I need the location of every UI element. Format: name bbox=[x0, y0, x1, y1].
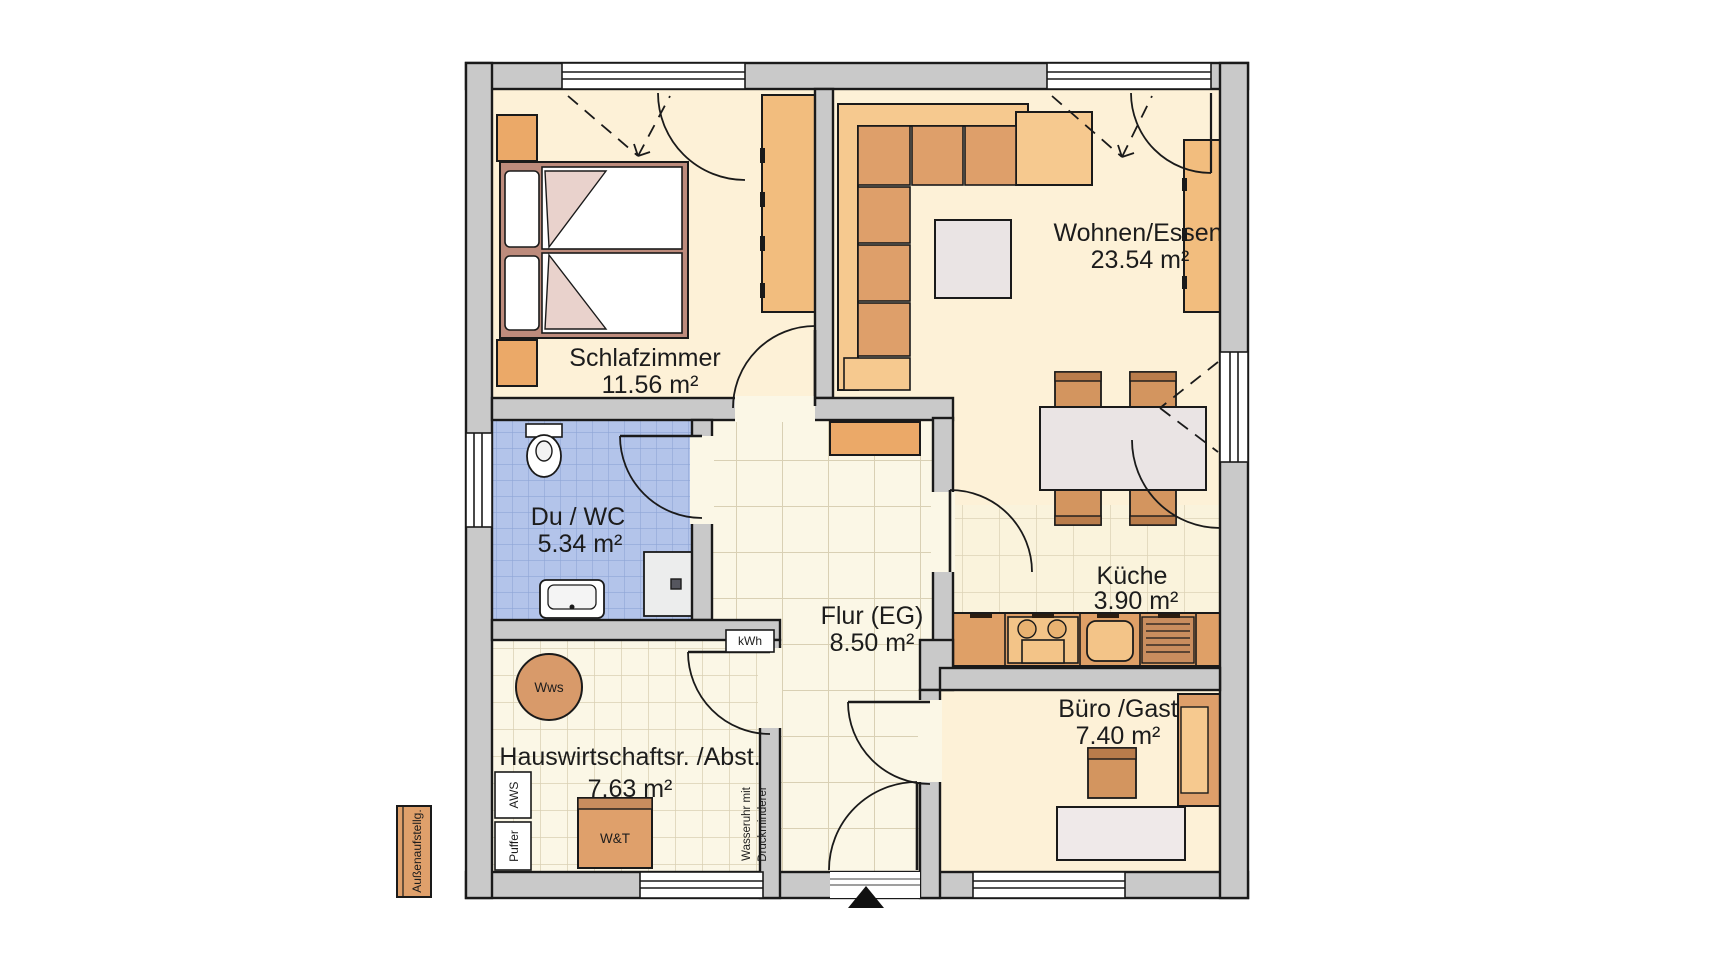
pillow bbox=[505, 256, 539, 330]
window-bedroom-top bbox=[562, 63, 745, 89]
label-buero-area: 7.40 m² bbox=[1076, 722, 1161, 750]
desk bbox=[1057, 807, 1185, 860]
label-schlafzimmer-name: Schlafzimmer bbox=[569, 344, 720, 372]
label-wasseruhr-1: Wasseruhr mit bbox=[741, 786, 753, 860]
wall-bedroom-bottom bbox=[492, 398, 953, 420]
label-kwh: kWh bbox=[738, 634, 762, 648]
entrance-opening bbox=[830, 872, 920, 898]
label-wohnen-name: Wohnen/Essen bbox=[1053, 219, 1222, 247]
label-schlafzimmer-area: 11.56 m² bbox=[602, 371, 699, 399]
label-hwr-area: 7.63 m² bbox=[588, 775, 673, 803]
label-buero-name: Büro /Gast bbox=[1058, 695, 1178, 723]
floor-plan-page: Schlafzimmer 11.56 m² Wohnen/Essen 23.54… bbox=[0, 0, 1720, 968]
label-kueche-name: Küche bbox=[1097, 562, 1168, 590]
window-hwr-bottom bbox=[640, 872, 763, 898]
label-wasseruhr-2: Druckminderer bbox=[757, 786, 769, 862]
nightstand bbox=[497, 115, 537, 161]
wall-bedroom-living bbox=[815, 89, 833, 398]
wall-right bbox=[1220, 63, 1248, 898]
shower-drain bbox=[671, 579, 681, 589]
hall-sideboard bbox=[830, 422, 920, 455]
label-wws: Wws bbox=[534, 680, 563, 695]
window-left bbox=[466, 433, 492, 527]
label-flur-name: Flur (EG) bbox=[821, 602, 924, 630]
oven bbox=[1022, 640, 1064, 663]
dining-table bbox=[1040, 407, 1206, 490]
label-flur-area: 8.50 m² bbox=[830, 629, 915, 657]
pillow bbox=[505, 171, 539, 247]
drainer bbox=[1142, 617, 1194, 663]
coffee-table bbox=[935, 220, 1011, 298]
label-duwc-area: 5.34 m² bbox=[538, 530, 623, 558]
label-aws: AWS bbox=[507, 782, 521, 809]
window-terrace-door-top bbox=[1047, 63, 1211, 89]
wardrobe bbox=[762, 95, 816, 312]
label-duwc-name: Du / WC bbox=[531, 503, 625, 531]
nightstand bbox=[497, 340, 537, 386]
kitchen-counter bbox=[953, 613, 1220, 666]
label-aussenaufstellung: Außenaufstellg. bbox=[410, 809, 424, 892]
floor-plan-canvas: Schlafzimmer 11.56 m² Wohnen/Essen 23.54… bbox=[0, 0, 1720, 968]
window-right bbox=[1220, 352, 1248, 462]
window-buero-bottom bbox=[973, 872, 1125, 898]
label-wt: W&T bbox=[600, 831, 630, 846]
sink-basin bbox=[1087, 621, 1133, 661]
wall-kitchen-buero bbox=[940, 668, 1220, 690]
label-puffer: Puffer bbox=[507, 830, 521, 862]
sofa-chaise bbox=[1016, 112, 1092, 185]
label-hwr-name: Hauswirtschaftsr. /Abst. bbox=[499, 743, 760, 771]
label-kueche-area: 3.90 m² bbox=[1094, 587, 1179, 615]
label-wohnen-area: 23.54 m² bbox=[1091, 246, 1190, 274]
